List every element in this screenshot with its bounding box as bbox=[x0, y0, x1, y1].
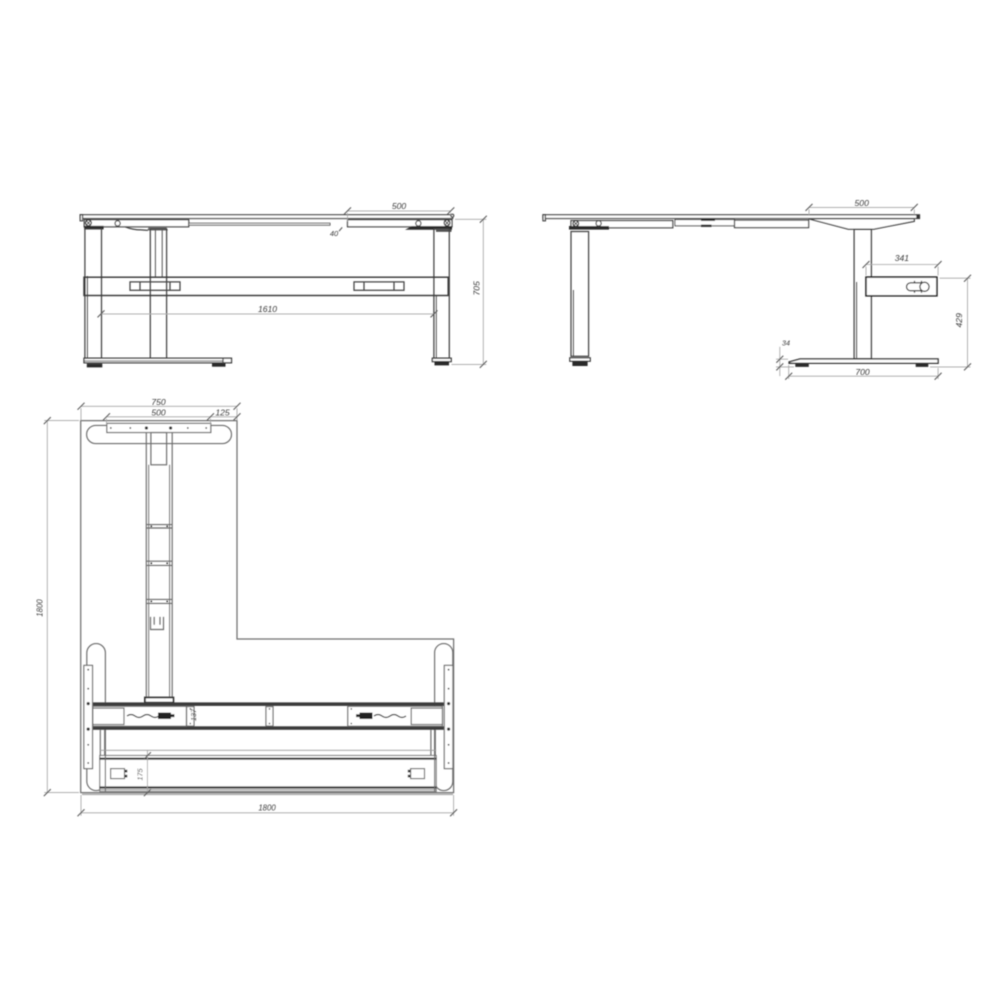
svg-text:700: 700 bbox=[855, 367, 870, 377]
svg-text:500: 500 bbox=[392, 201, 407, 211]
svg-text:1610: 1610 bbox=[258, 304, 277, 314]
svg-text:34: 34 bbox=[782, 339, 790, 348]
svg-text:125: 125 bbox=[215, 407, 230, 417]
svg-text:500: 500 bbox=[855, 198, 870, 208]
svg-text:175: 175 bbox=[136, 768, 145, 781]
svg-text:500: 500 bbox=[151, 408, 166, 418]
svg-text:341: 341 bbox=[895, 253, 910, 263]
svg-text:1800: 1800 bbox=[258, 804, 276, 813]
svg-text:137: 137 bbox=[189, 708, 198, 721]
svg-text:1800: 1800 bbox=[36, 599, 45, 617]
svg-text:705: 705 bbox=[472, 281, 482, 296]
svg-text:750: 750 bbox=[151, 397, 166, 407]
svg-text:40: 40 bbox=[330, 229, 339, 238]
svg-text:429: 429 bbox=[954, 313, 964, 328]
